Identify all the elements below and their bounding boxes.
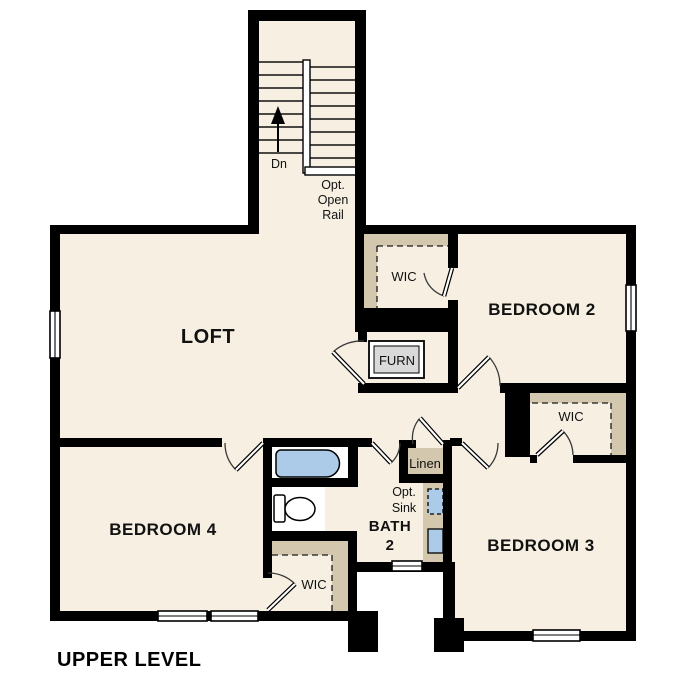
wall-segment [50, 225, 60, 621]
wic4-shelf [332, 541, 348, 611]
bath-label-line1: BATH [369, 518, 412, 535]
wall-segment [263, 438, 272, 541]
wall-segment [443, 562, 455, 641]
wall-segment [448, 234, 458, 268]
window [50, 311, 60, 358]
toilet-tank [274, 495, 285, 522]
rail-note-line2: Open [318, 193, 349, 207]
bathtub [276, 450, 340, 477]
wall-segment [263, 531, 272, 578]
window [211, 611, 258, 621]
window [158, 611, 207, 621]
wall-segment [530, 455, 537, 463]
loft-label: LOFT [181, 326, 235, 348]
stair-open-rail [305, 167, 357, 175]
sink [428, 529, 443, 553]
window [626, 285, 636, 331]
optional-sink [428, 489, 443, 514]
linen-label: Linen [409, 456, 441, 471]
wic2-shelf [364, 246, 377, 308]
wall-segment [443, 481, 452, 572]
wic2-label: WIC [391, 269, 416, 284]
stair-center-rail [303, 60, 310, 173]
wall-segment [573, 455, 636, 463]
wall-segment [399, 440, 416, 448]
wall-segment [248, 10, 366, 21]
floor-plan-page: LOFT BEDROOM 2 BEDROOM 3 BEDROOM 4 BATH … [0, 0, 687, 687]
bedroom3-label: BEDROOM 3 [487, 536, 594, 555]
window [533, 630, 580, 641]
rail-note-line3: Rail [322, 208, 344, 222]
wall-segment [505, 390, 530, 457]
rail-note-line1: Opt. [321, 178, 345, 192]
stairs-down-label: Dn [271, 157, 287, 171]
wall-segment [355, 225, 636, 234]
wall-segment [355, 232, 364, 308]
window [392, 561, 422, 571]
wall-segment [450, 438, 462, 446]
plan-title: UPPER LEVEL [57, 649, 201, 671]
optional-sink-note-line1: Opt. [392, 485, 416, 499]
wic3-shelf [611, 403, 626, 455]
wall-segment [355, 308, 458, 332]
wall-segment [248, 10, 259, 232]
optional-sink-note-line2: Sink [392, 501, 417, 515]
wic2-shelf [364, 234, 448, 246]
wall-segment [355, 10, 366, 232]
toilet-bowl [285, 498, 315, 521]
bedroom2-label: BEDROOM 2 [488, 300, 595, 319]
wall-segment [263, 478, 352, 487]
wall-segment [500, 383, 636, 393]
furnace-label: FURN [379, 353, 415, 368]
floor-plan: LOFT BEDROOM 2 BEDROOM 3 BEDROOM 4 BATH … [0, 0, 687, 687]
wic3-label: WIC [558, 409, 583, 424]
wic4-label: WIC [301, 577, 326, 592]
wall-segment [263, 531, 357, 541]
wall-stub [348, 611, 378, 652]
wall-segment [50, 225, 259, 234]
wall-segment [348, 531, 357, 616]
wall-segment [358, 383, 458, 393]
bath-label-line2: 2 [386, 537, 395, 554]
bedroom4-label: BEDROOM 4 [109, 520, 217, 539]
wall-segment [50, 438, 222, 447]
